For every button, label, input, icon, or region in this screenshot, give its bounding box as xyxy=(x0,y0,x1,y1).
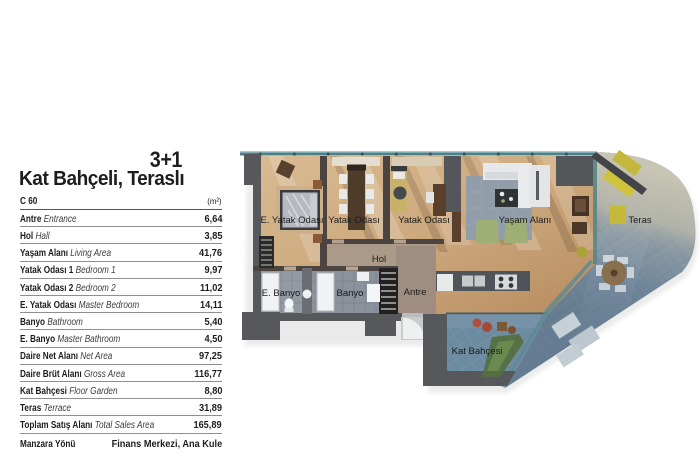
svg-text:Yaşam Alanı: Yaşam Alanı xyxy=(499,215,552,226)
svg-text:Hol: Hol xyxy=(372,254,386,265)
svg-text:Yatak Odası: Yatak Odası xyxy=(398,215,450,226)
svg-text:E. Yatak Odası: E. Yatak Odası xyxy=(260,215,323,226)
svg-text:E. Banyo: E. Banyo xyxy=(262,288,301,299)
svg-text:Antre: Antre xyxy=(404,287,427,298)
svg-text:Kat Bahçesi: Kat Bahçesi xyxy=(452,346,503,357)
svg-text:Yatak Odası: Yatak Odası xyxy=(328,215,380,226)
svg-text:Teras: Teras xyxy=(628,215,651,226)
svg-text:Banyo: Banyo xyxy=(337,288,364,299)
